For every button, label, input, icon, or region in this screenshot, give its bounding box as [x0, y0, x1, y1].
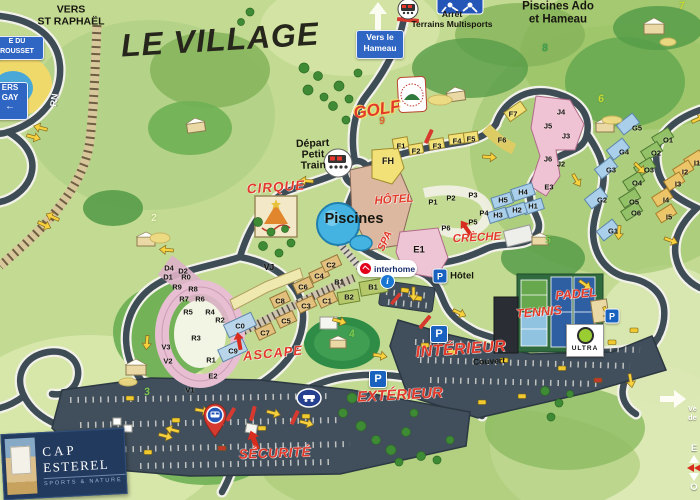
building-label-f6: F6 [498, 136, 507, 145]
building-label-c1: C1 [322, 297, 332, 306]
sign-rousset: E DUROUSSET [0, 36, 44, 60]
compass-rose: E O [684, 443, 700, 493]
building-label-i1: I1 [694, 159, 700, 168]
building-label-j4: J4 [557, 108, 565, 117]
parking-icon-interieur: P [430, 325, 448, 343]
building-label-c7: C7 [260, 329, 270, 338]
golf-hole-number-9: 9 [378, 115, 385, 128]
road-label-rn: RN [48, 93, 60, 107]
building-label-f2: F2 [412, 147, 421, 156]
building-label-v2: V2 [163, 357, 172, 366]
golf-hole-number-4: 4 [348, 328, 355, 341]
building-label-b2: B2 [344, 293, 354, 302]
building-label-r3: R3 [191, 334, 201, 343]
building-label-r0: R0 [181, 273, 191, 282]
building-label-r2: R2 [215, 316, 225, 325]
building-label-c8: C8 [275, 297, 285, 306]
area-label-creche: CRÈCHE [452, 231, 501, 246]
edge-text-fragment: Vede [688, 404, 697, 423]
building-label-p5: P5 [468, 218, 477, 227]
compass-east: E [684, 443, 700, 454]
building-label-f5: F5 [467, 135, 476, 144]
building-label-r7: R7 [179, 295, 189, 304]
building-label-c5: C5 [281, 317, 291, 326]
building-label-r1: R1 [206, 356, 216, 365]
building-label-c3: C3 [301, 302, 311, 311]
building-label-v3: V3 [161, 343, 170, 352]
building-label-h5: H5 [498, 196, 508, 205]
sign-vers-le-hameau: Vers leHameau [356, 30, 404, 59]
building-label-c9: C9 [228, 347, 238, 356]
building-label-b1: B1 [334, 278, 344, 287]
sign-vers-st-raphael: VERSST RAPHAËL [37, 4, 104, 27]
resort-map: VERSST RAPHAËL LE VILLAGE Vers leHameau … [0, 0, 700, 500]
area-label-securite: SÉCURITÉ [239, 444, 312, 462]
building-label-o4: O4 [632, 179, 642, 188]
building-label-h3: H3 [493, 211, 503, 220]
building-label-d4: D4 [164, 264, 174, 273]
building-label-b1: B1 [368, 283, 378, 292]
sign-arret-multisports: ArrêtTerrains Multisports [411, 10, 492, 30]
building-label-r9: R9 [172, 283, 182, 292]
building-label-f3: F3 [433, 142, 442, 151]
building-label-c0: C0 [235, 322, 245, 331]
building-label-o6: O6 [631, 209, 641, 218]
golf-hole-number-2: 2 [150, 212, 157, 225]
label-couvert: Couvert [473, 355, 506, 367]
building-label-j5: J5 [544, 122, 552, 131]
building-label-e2: E2 [208, 372, 217, 381]
tennis-ball-icon [577, 327, 594, 344]
compass-west: O [684, 482, 700, 493]
building-label-v1: V1 [185, 386, 194, 395]
building-label-o3: O3 [644, 166, 654, 175]
info-icon: i [380, 274, 395, 289]
ultra-logo: ULTRA [566, 324, 604, 357]
car-sign-icon [297, 389, 321, 407]
building-label-r5: R5 [183, 308, 193, 317]
building-label-g2: G2 [597, 196, 607, 205]
building-label-i2: I2 [682, 168, 688, 177]
compass-down-icon [689, 473, 699, 481]
interhome-wordmark: interhome [374, 264, 415, 274]
parking-icon-padel: P [605, 309, 620, 324]
building-label-o2: O2 [651, 149, 661, 158]
interhome-icon [360, 263, 371, 274]
building-label-h2: H2 [512, 206, 522, 215]
building-label-e1: E1 [413, 245, 425, 256]
building-label-o1: O1 [663, 136, 673, 145]
building-label-f4: F4 [453, 137, 462, 146]
label-depart-petit-train: DépartPetitTrain [296, 138, 330, 172]
building-label-p1: P1 [428, 198, 437, 207]
cap-esterel-photo [5, 438, 38, 495]
sign-agay: ERSGAY ← [0, 82, 28, 120]
building-label-p6: P6 [441, 224, 450, 233]
building-label-c2: C2 [326, 261, 336, 270]
cap-esterel-logo: CAP ESTEREL SPORTS & NATURE [0, 428, 127, 500]
building-label-j3: J3 [562, 132, 570, 141]
building-label-p3: P3 [468, 191, 477, 200]
building-label-i5: I5 [666, 213, 672, 222]
building-label-g3: G3 [606, 166, 616, 175]
building-label-vj: VJ [264, 262, 274, 272]
parking-icon-exterieur: P [369, 370, 387, 388]
building-label-h1: H1 [528, 202, 538, 211]
building-label-p2: P2 [446, 194, 455, 203]
building-label-i4: I4 [663, 196, 669, 205]
building-label-h4: H4 [518, 188, 528, 197]
building-label-fh: FH [382, 156, 394, 166]
building-label-c4: C4 [314, 272, 324, 281]
building-label-r4: R4 [205, 308, 215, 317]
sign-piscines-ado: Piscines Adoet Hameau [522, 0, 594, 25]
circus-poster [255, 196, 297, 237]
building-label-g5: G5 [632, 124, 642, 133]
map-artwork [0, 0, 700, 500]
golf-hole-number-3: 3 [143, 386, 150, 399]
golf-club-logo [397, 76, 427, 112]
building-label-d1: D1 [163, 273, 173, 282]
building-label-j6: J6 [544, 155, 552, 164]
building-label-o5: O5 [629, 198, 639, 207]
building-label-f7: F7 [509, 110, 518, 119]
compass-up-icon [689, 455, 699, 463]
building-label-i3: I3 [675, 180, 681, 189]
building-label-r8: R8 [188, 285, 198, 294]
building-label-p4: P4 [479, 209, 488, 218]
building-label-f1: F1 [397, 142, 406, 151]
building-label-r6: R6 [195, 295, 205, 304]
building-label-e3: E3 [544, 183, 553, 192]
area-label-piscines: Piscines [325, 211, 384, 227]
parking-hotel-label: Hôtel [450, 271, 474, 282]
golf-hole-number-8: 8 [541, 42, 548, 55]
parking-icon-hotel: P [433, 269, 448, 284]
building-label-g1: G1 [608, 227, 618, 236]
golf-hole-number-6: 6 [597, 93, 604, 106]
building-label-g4: G4 [619, 148, 629, 157]
building-label-c6: C6 [298, 283, 308, 292]
golf-hole-number-7: 7 [678, 0, 685, 12]
golf-hole-number-5: 5 [544, 234, 551, 247]
building-label-j2: J2 [557, 160, 565, 169]
